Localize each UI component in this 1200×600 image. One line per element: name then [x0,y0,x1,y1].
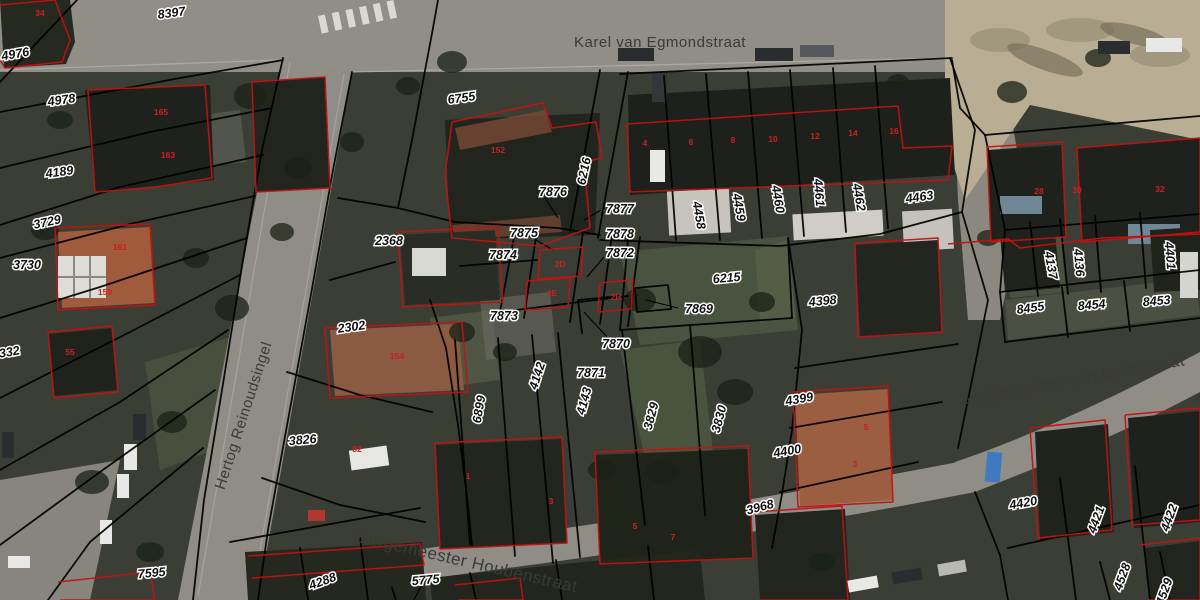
house-number-label: 2H [611,292,622,302]
parcel-label: 3730 [13,258,41,272]
parcel-label: 3826 [288,432,318,448]
parcel-label: 4398 [807,293,837,309]
parcel-label: 7875 [510,226,539,240]
house-number-label: 32 [1155,184,1165,194]
house-number-label: 3 [549,496,554,506]
house-number-label: 2D [555,259,566,269]
parcel-label: 7874 [489,248,517,262]
parcel-label: 6215 [712,270,742,286]
house-number-label: 159 [98,287,112,297]
house-number-label: 16 [889,126,899,136]
house-number-label: 161 [113,242,127,252]
house-number-label: 30 [1072,185,1082,195]
street-name-label: Karel van Egmondstraat [574,34,746,51]
parcel-label: 7595 [137,565,167,581]
house-number-label: 8 [731,135,736,145]
house-number-label: 34 [35,8,45,18]
house-number-label: 4 [643,138,648,148]
house-number-label: 2E [547,288,558,298]
house-number-label: 28 [1034,186,1044,196]
house-number-label: 5 [633,521,638,531]
house-number-label: 12 [810,131,820,141]
house-number-label: 152 [491,145,505,155]
map-canvas[interactable]: 3416516316115955152154821357534681012141… [0,0,1200,600]
parcel-label: 7878 [606,227,634,241]
parcel-label: 7871 [577,366,605,380]
parcel-label: 2368 [374,234,403,248]
parcel-label: 4136 [1071,247,1088,278]
house-number-label: 6 [689,137,694,147]
house-number-label: 7 [671,532,676,542]
parcel-label: 7877 [606,202,635,216]
parcel-label: 7876 [539,185,568,199]
house-number-label: 3 [853,459,858,469]
parcel-label: 8454 [1077,297,1106,313]
house-number-label: 154 [390,351,404,361]
house-number-label: 1 [466,471,471,481]
map-viewport[interactable]: 3416516316115955152154821357534681012141… [0,0,1200,600]
parcel-label: 7869 [685,302,713,316]
house-number-label: 14 [848,128,858,138]
parcel-label: 4461 [811,177,827,207]
house-number-label: 5 [864,422,869,432]
house-number-label: 82 [352,444,362,454]
house-number-label: 163 [161,150,175,160]
parcel-label: 5775 [411,572,441,588]
house-number-label: 55 [65,347,75,357]
parcel-label: 7870 [602,337,630,351]
house-number-label: 10 [768,134,778,144]
parcel-label: 8453 [1142,293,1171,309]
parcel-label: 7873 [490,309,518,323]
house-number-label: 165 [154,107,168,117]
parcel-label: 7872 [606,246,634,260]
parcel-label: 4401 [1162,240,1178,270]
